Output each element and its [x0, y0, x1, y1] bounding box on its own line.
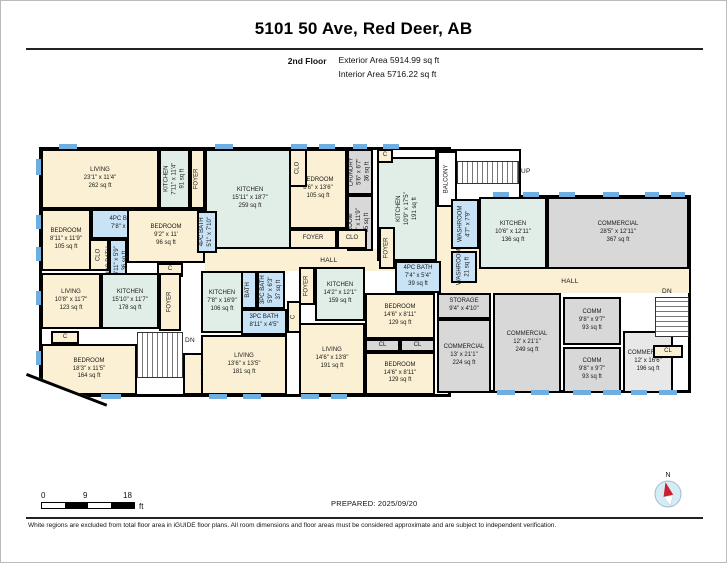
window-marker — [301, 394, 319, 399]
hall: HALL — [451, 269, 689, 293]
room-label: KITCHEN15'10" x 11'7"178 sq ft — [112, 289, 148, 312]
room-bedroom: BEDROOM14'6" x 8'11"129 sq ft — [365, 352, 435, 395]
window-marker — [645, 192, 659, 197]
room-bedroom: BEDROOM9'2" x 11'96 sq ft — [127, 209, 205, 263]
room-label: CL — [414, 342, 422, 350]
room-label: LIVING23'1" x 11'4"262 sq ft — [84, 167, 116, 190]
room-label: KITCHEN7'8" x 16'9"106 sq ft — [207, 290, 237, 313]
room-kitchen: KITCHEN15'10" x 11'7"178 sq ft — [101, 273, 159, 329]
room-cl: CL — [400, 339, 435, 352]
window-marker — [523, 192, 539, 197]
room-washroom: WASHROOM4'7" x 7'9" — [451, 199, 479, 249]
footer-divider — [26, 517, 703, 519]
window-marker — [209, 394, 227, 399]
room-label: C — [383, 152, 387, 160]
room-commercial: COMMERCIAL13' x 21'1"224 sq ft — [437, 319, 491, 393]
room-label: KITCHEN10'9" x 17'5"191 sq ft — [395, 193, 418, 226]
room-label: FOYER — [383, 238, 391, 259]
room-label: KITCHEN15'11" x 18'7"259 sq ft — [232, 187, 268, 210]
stairs — [457, 161, 519, 184]
label-up: UP — [521, 168, 545, 178]
room-commercial: COMMERCIAL12' x 16'6"196 sq ft — [623, 331, 673, 393]
room-living: LIVING14'6" x 13'8"191 sq ft — [299, 323, 365, 395]
room-washroom: WASHROOM21 sq ft — [451, 251, 477, 283]
room-label: 4PC BATH4'11" x 5'9"36 sq ft — [106, 246, 129, 275]
window-marker — [291, 144, 307, 149]
window-marker — [573, 390, 591, 395]
room-bedroom: BEDROOM8'11" x 11'9"105 sq ft — [41, 209, 91, 271]
room-clo: CLO — [337, 229, 367, 249]
floor-plan: HALLHALLLIVING23'1" x 11'4"262 sq ftKITC… — [1, 1, 726, 562]
scale-bar-graphic — [41, 502, 135, 509]
compass-icon — [653, 479, 683, 509]
window-marker — [215, 144, 233, 149]
room-label: CLO — [95, 249, 103, 261]
window-marker — [559, 192, 575, 197]
room-label: 4PC BATH5'1" x 7'10" — [199, 217, 215, 247]
scale-bar: 0 9 18 ft — [41, 491, 181, 509]
room-bath: BATH — [241, 271, 257, 309]
room-label: FOYER — [303, 276, 311, 297]
window-marker — [36, 215, 41, 229]
room-foyer: FOYER — [379, 227, 395, 269]
room-label: C — [290, 315, 298, 319]
window-marker — [531, 390, 549, 395]
window-marker — [36, 351, 41, 365]
room-label: FOYER — [194, 169, 202, 190]
room-label: BEDROOM9'2" x 11'96 sq ft — [150, 224, 181, 247]
window-marker — [331, 394, 347, 399]
room-3pc-bath: 3PC BATH5'9" x 6'3"37 sq ft — [257, 271, 285, 309]
room-label: LIVING14'6" x 13'8"191 sq ft — [316, 347, 349, 370]
window-marker — [36, 291, 41, 305]
room-label: WASHROOM4'7" x 7'9" — [457, 206, 473, 242]
room-label: COMMERCIAL13' x 21'1"224 sq ft — [444, 344, 485, 367]
hall-label: HALL — [320, 257, 337, 264]
room-cl: CL — [365, 339, 400, 352]
window-marker — [603, 192, 619, 197]
room-label: STORAGE9'4" x 4'10" — [449, 298, 479, 314]
room-comm: COMM9'8" x 9'7"93 sq ft — [563, 297, 621, 345]
scale-unit: ft — [139, 502, 143, 511]
room-label: FOYER — [166, 292, 174, 313]
room-label: COMMERCIAL28'5" x 12'11"367 sq ft — [598, 221, 639, 244]
room-foyer: FOYER — [190, 149, 205, 209]
window-marker — [243, 394, 261, 399]
room-living: LIVING10'8" x 11'7"123 sq ft — [41, 273, 101, 329]
room-kitchen: KITCHEN7'8" x 16'9"106 sq ft — [201, 271, 243, 333]
room-foyer: FOYER — [289, 229, 337, 249]
window-marker — [497, 390, 515, 395]
window-marker — [631, 390, 647, 395]
room-label: 4PC BATH7'4" x 5'4"39 sq ft — [404, 265, 433, 288]
room-kitchen: KITCHEN7'11" x 11'4"91 sq ft — [159, 149, 190, 209]
window-marker — [353, 144, 367, 149]
room-label: 3PC BATH5'9" x 6'3"37 sq ft — [259, 276, 282, 305]
room-cl: CL — [653, 345, 683, 358]
stairs — [137, 332, 183, 378]
compass: N — [651, 472, 685, 511]
label-dn: DN — [662, 288, 686, 298]
room-kitchen: KITCHEN14'2" x 12'1"159 sq ft — [315, 267, 365, 321]
room-label: CLO — [294, 162, 302, 174]
room-label: BEDROOM14'6" x 8'11"129 sq ft — [384, 362, 416, 385]
room-4pc-bath: 4PC BATH5'1" x 7'10" — [197, 211, 217, 253]
room-kitchen: KITCHEN15'11" x 18'7"259 sq ft — [205, 149, 295, 249]
room-3pc-bath: 3PC BATH8'11" x 4'5" — [241, 309, 287, 335]
room-label: CL — [664, 348, 672, 356]
room-label: BEDROOM8'11" x 11'9"105 sq ft — [50, 228, 82, 251]
stairs — [655, 297, 689, 337]
scale-tick-18: 18 — [123, 491, 132, 500]
room-label: KITCHEN14'2" x 12'1"159 sq ft — [324, 282, 357, 305]
room-label: BATH — [245, 282, 253, 298]
compass-north-label: N — [651, 472, 685, 479]
disclaimer-text: White regions are excluded from total fl… — [28, 522, 718, 529]
room-foyer: FOYER — [299, 267, 315, 305]
room-label: CL — [379, 342, 387, 350]
room-c: C — [51, 331, 79, 344]
room-storage: STORAGE9'4" x 4'10" — [437, 293, 491, 319]
room-foyer: FOYER — [159, 273, 181, 331]
window-marker — [319, 144, 335, 149]
room-label: COMM9'8" x 9'7"93 sq ft — [579, 358, 605, 381]
room-commercial: COMMERCIAL12' x 21'1"249 sq ft — [493, 293, 561, 393]
window-marker — [59, 144, 77, 149]
prepared-date: PREPARED: 2025/09/20 — [331, 499, 417, 508]
hall-label: HALL — [561, 278, 578, 285]
room-label: KITCHEN10'6" x 12'11"136 sq ft — [495, 221, 531, 244]
floor-plan-page: 5101 50 Ave, Red Deer, AB 2nd Floor Exte… — [0, 0, 727, 563]
scale-tick-0: 0 — [41, 491, 45, 500]
window-marker — [659, 390, 677, 395]
room-4pc-bath: 4PC BATH7'4" x 5'4"39 sq ft — [395, 261, 441, 293]
room-comm: COMM9'8" x 9'7"93 sq ft — [563, 347, 621, 393]
label-dn: DN — [185, 337, 209, 347]
room-label: C — [63, 334, 67, 342]
room-bedroom: BEDROOM14'6" x 8'11"129 sq ft — [365, 293, 435, 339]
room-label: BEDROOM18'3" x 11'5"164 sq ft — [73, 358, 105, 381]
room-label: BEDROOM8'6" x 13'6"105 sq ft — [302, 177, 333, 200]
window-marker — [603, 390, 621, 395]
room-label: COMM9'8" x 9'7"93 sq ft — [579, 309, 605, 332]
room-clo: CLO — [289, 149, 307, 187]
window-marker — [101, 394, 121, 399]
room-label: COMMERCIAL12' x 21'1"249 sq ft — [507, 331, 548, 354]
room-c: C — [377, 149, 393, 163]
room-label: 3PC BATH8'11" x 4'5" — [249, 314, 278, 330]
room-kitchen: KITCHEN10'6" x 12'11"136 sq ft — [479, 197, 547, 269]
window-marker — [493, 192, 509, 197]
room-laundry: LAUNDRY5'6" x 6'7"36 sq ft — [347, 149, 373, 195]
room-label: WASHROOM21 sq ft — [456, 249, 472, 285]
window-marker — [671, 192, 685, 197]
room-label: LAUNDRY5'6" x 6'7"36 sq ft — [348, 158, 371, 187]
scale-tick-9: 9 — [83, 491, 87, 500]
room-label: BEDROOM14'6" x 8'11"129 sq ft — [384, 304, 416, 327]
room-label: KITCHEN7'11" x 11'4"91 sq ft — [163, 163, 186, 195]
window-marker — [36, 247, 41, 261]
room-label: LIVING10'8" x 11'7"123 sq ft — [55, 289, 87, 312]
room-label: BALCONY — [443, 165, 451, 194]
window-marker — [383, 144, 399, 149]
window-marker — [36, 159, 41, 175]
room-living: LIVING13'6" x 13'5"181 sq ft — [201, 335, 287, 395]
room-label: LIVING13'6" x 13'5"181 sq ft — [228, 353, 261, 376]
room-living: LIVING23'1" x 11'4"262 sq ft — [41, 149, 159, 209]
room-label: FOYER — [303, 235, 324, 243]
room-label: CLO — [346, 235, 358, 243]
scale-tick-labels: 0 9 18 — [41, 491, 181, 502]
room-commercial: COMMERCIAL28'5" x 12'11"367 sq ft — [547, 197, 689, 269]
